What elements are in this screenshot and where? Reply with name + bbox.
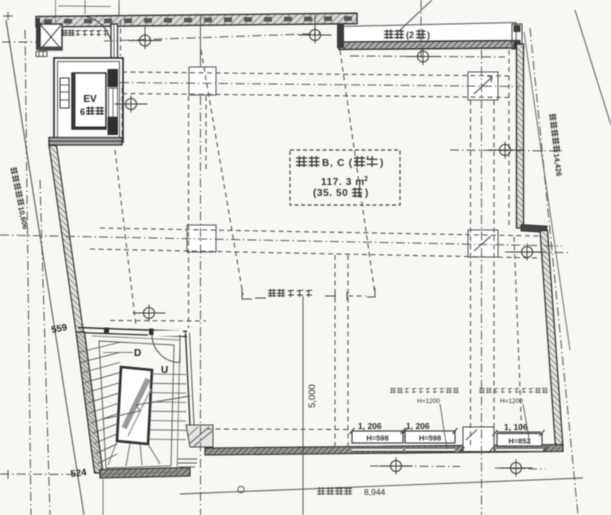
svg-text:8,944: 8,944	[364, 487, 386, 497]
svg-text:2: 2	[364, 176, 368, 183]
svg-text:5,000: 5,000	[307, 384, 318, 408]
svg-text:H=852: H=852	[508, 437, 530, 446]
svg-text:B, C (: B, C (	[322, 158, 353, 169]
svg-text:H=598: H=598	[419, 434, 441, 443]
svg-text:117. 3 m: 117. 3 m	[321, 177, 365, 188]
svg-text:1, 206: 1, 206	[406, 421, 430, 431]
svg-text:H=598: H=598	[366, 434, 388, 443]
svg-text:6: 6	[80, 107, 85, 117]
svg-text:): )	[365, 188, 368, 199]
svg-text:(35. 50: (35. 50	[313, 188, 348, 199]
svg-text:): )	[380, 158, 383, 169]
svg-text:U: U	[161, 365, 168, 376]
svg-text:H=1200: H=1200	[417, 398, 440, 405]
svg-text:1, 206: 1, 206	[358, 421, 382, 431]
svg-text:524: 524	[70, 467, 88, 480]
svg-text:H=1200: H=1200	[500, 398, 523, 405]
svg-text:EV: EV	[83, 94, 97, 105]
svg-text:): )	[427, 30, 430, 40]
svg-text:(2: (2	[406, 30, 414, 40]
svg-text:D: D	[134, 348, 141, 359]
svg-text:1, 106: 1, 106	[504, 422, 528, 432]
